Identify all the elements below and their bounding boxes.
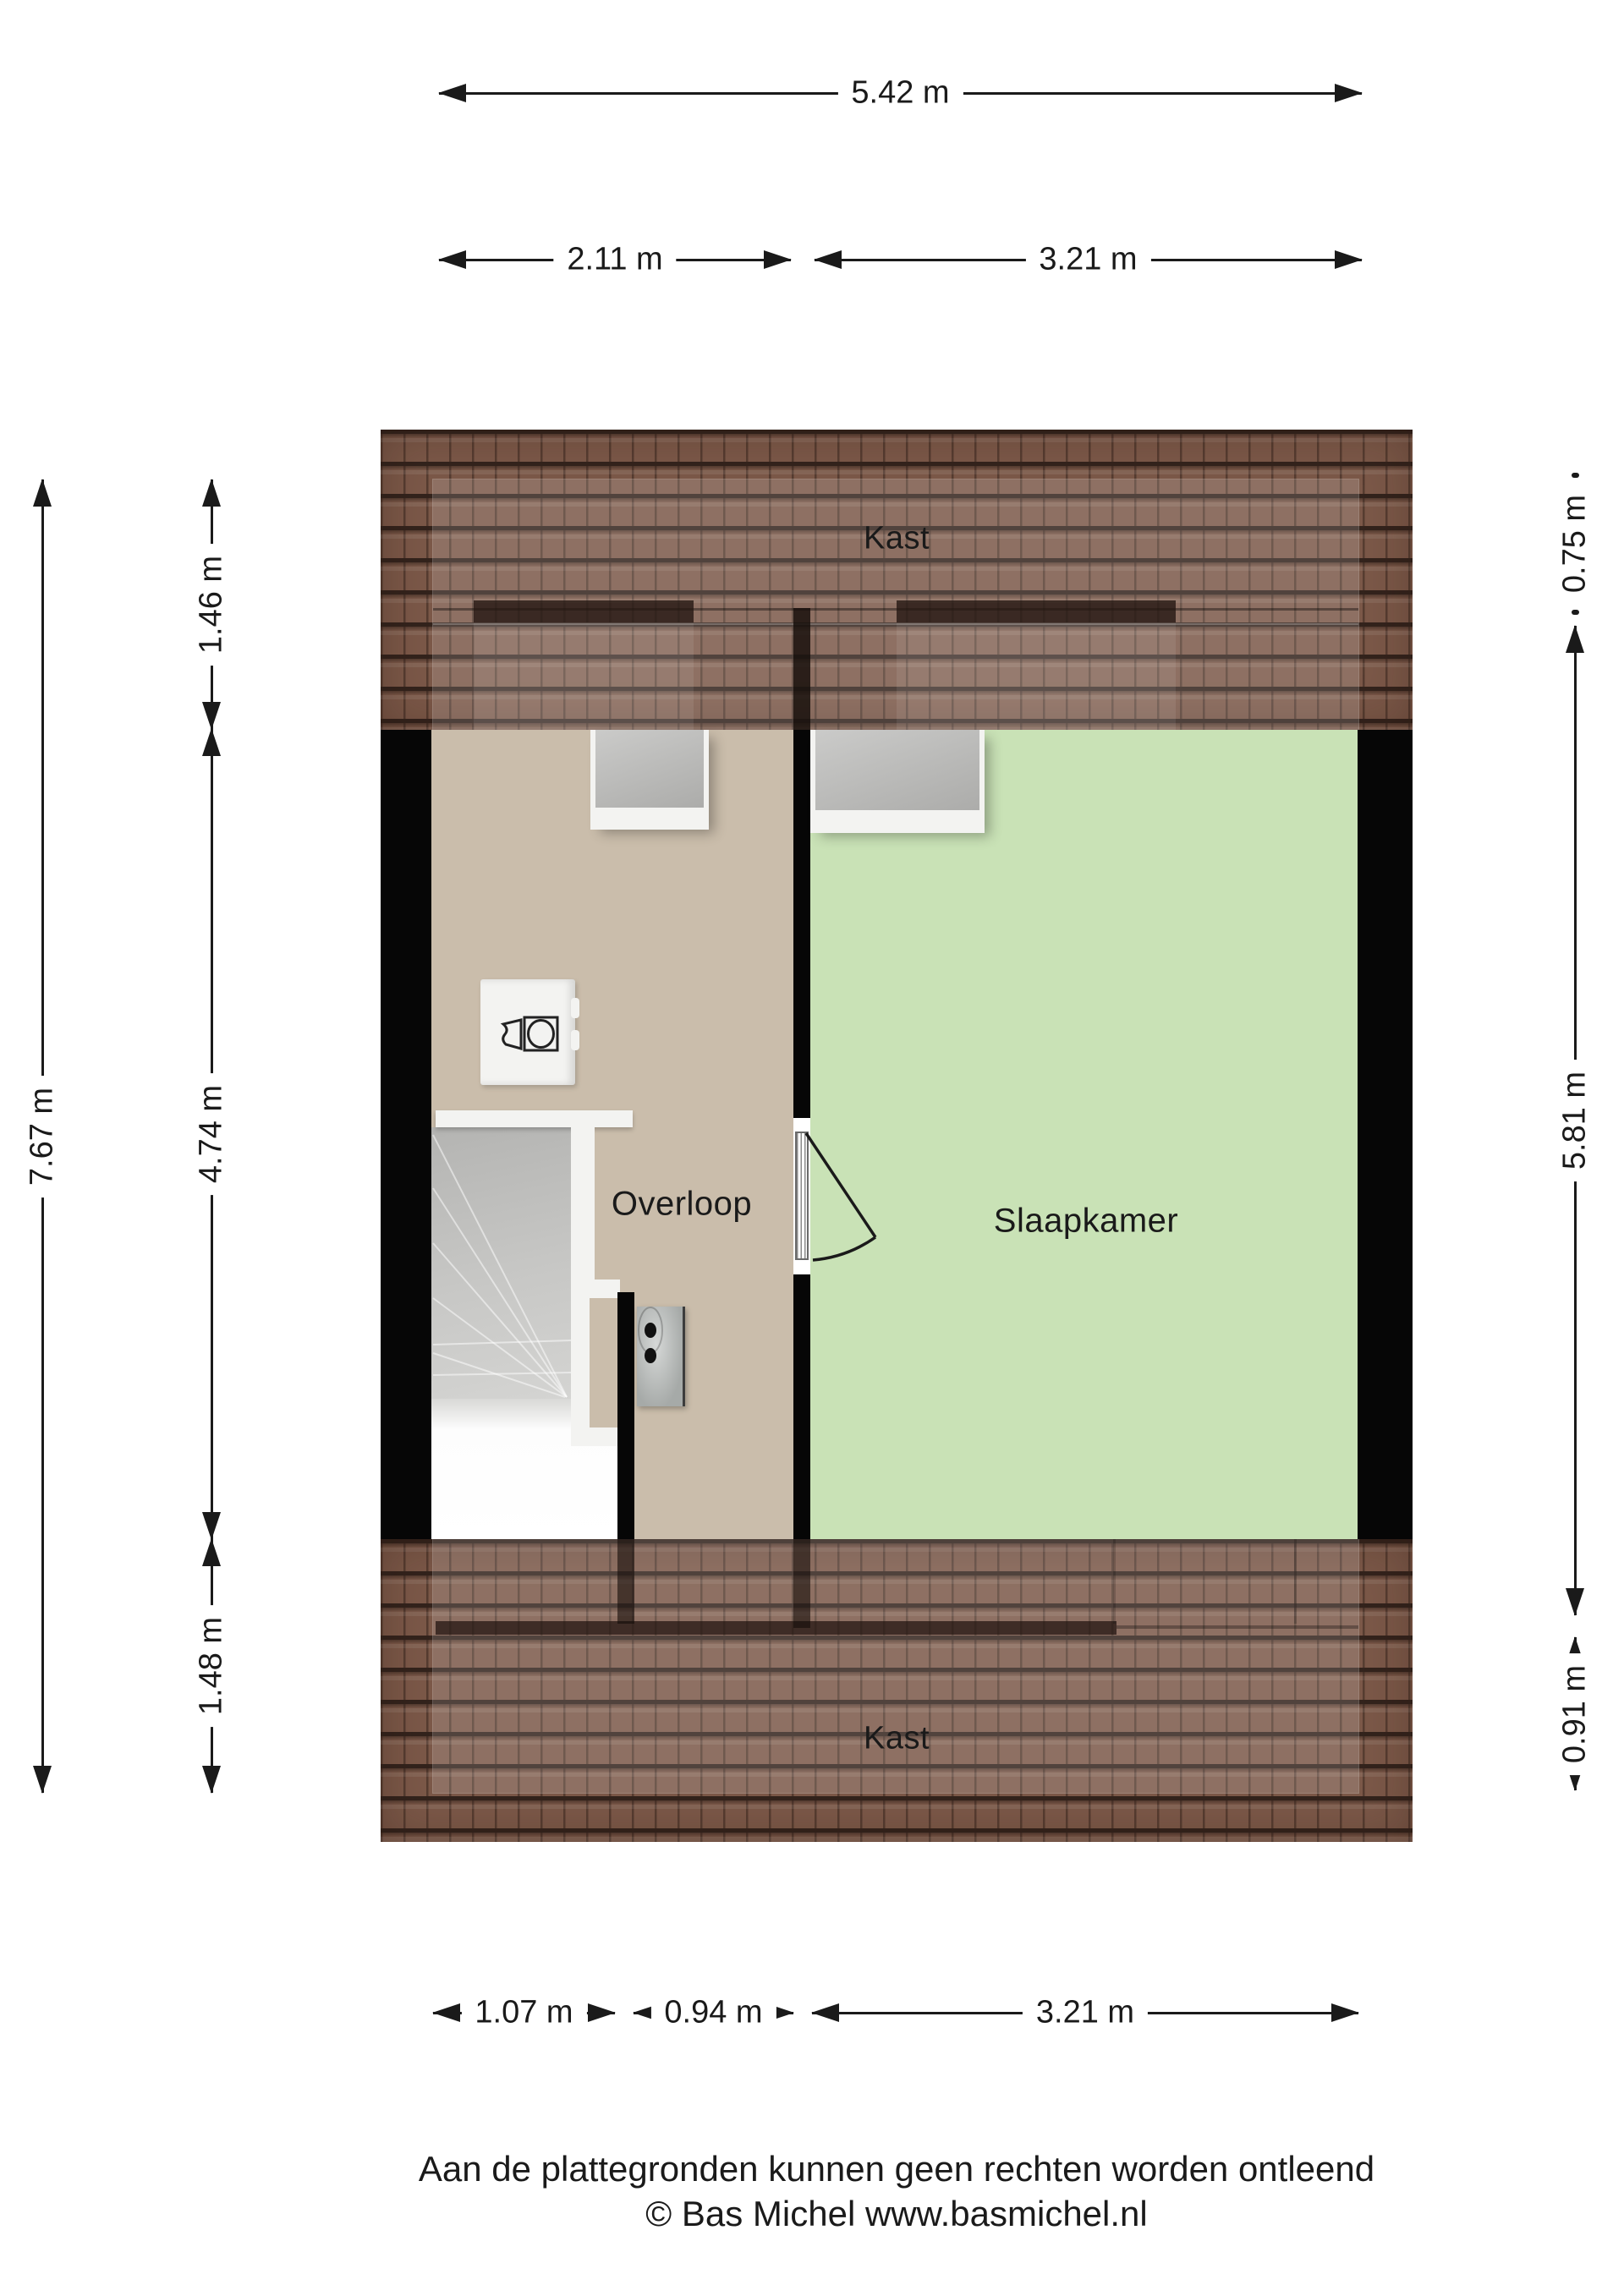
stair-railing-frame [571, 1280, 620, 1446]
dim-label: 2.11 m [553, 239, 676, 281]
divider-wall-under-roof-top [793, 608, 810, 730]
knee-wall-segment [897, 600, 1176, 622]
dim-label: 4.74 m [191, 1073, 233, 1195]
room-slaapkamer [810, 730, 1358, 1539]
dim-label: 3.21 m [1025, 239, 1150, 281]
window-overloop [590, 730, 709, 830]
dim-label: 1.48 m [191, 1605, 233, 1727]
label-slaapkamer: Slaapkamer [994, 1203, 1178, 1241]
dim-label: 0.94 m [650, 1992, 776, 2034]
electrical-panel-icon [637, 1307, 685, 1406]
dormer-reveal [897, 623, 1176, 730]
disclaimer-line1: Aan de plattegronden kunnen geen rechten… [220, 2146, 1573, 2191]
washing-machine-icon [480, 979, 575, 1085]
label-kast-bottom: Kast [864, 1721, 930, 1757]
label-overloop: Overloop [612, 1186, 752, 1224]
washer-hinge [571, 1030, 579, 1050]
dormer-reveal [474, 623, 694, 730]
dim-label: 7.67 m [22, 1075, 63, 1197]
label-kast-top: Kast [864, 521, 930, 557]
dim-label: 0.75 m [1555, 483, 1596, 605]
dim-label: 1.07 m [461, 1992, 586, 2034]
knee-wall-segment [474, 600, 694, 622]
disclaimer-line2: © Bas Michel www.basmichel.nl [220, 2191, 1573, 2236]
floorplan-page: Kast Overloop Slaapkamer Kast 5.42 m 2.1… [0, 0, 1624, 2296]
stair-railing-top [436, 1110, 633, 1127]
washer-hinge [571, 998, 579, 1018]
dim-label: 3.21 m [1023, 1992, 1148, 2034]
disclaimer: Aan de plattegronden kunnen geen rechten… [220, 2146, 1573, 2237]
dim-label: 5.81 m [1555, 1060, 1596, 1181]
winder-stairs [431, 1127, 571, 1399]
stair-railing-side [571, 1127, 595, 1280]
window-pane [815, 730, 979, 810]
stub-wall-under-roof [617, 1539, 634, 1624]
window-pane [595, 730, 704, 808]
knee-wall-line-bottom [1116, 1625, 1358, 1629]
divider-wall-under-roof-bottom [793, 1539, 810, 1628]
dim-label: 5.42 m [837, 73, 963, 114]
roof-reveal-line [1113, 1539, 1116, 1624]
dim-label: 0.91 m [1555, 1652, 1596, 1774]
door-leaf [795, 1132, 809, 1260]
dim-label: 1.46 m [191, 543, 233, 665]
stair-railing-frame-opening [590, 1298, 617, 1427]
outer-wall-right [1358, 730, 1413, 1539]
outer-wall-left [381, 730, 431, 1539]
window-slaapkamer [810, 730, 985, 833]
stub-wall [617, 1292, 634, 1539]
knee-wall-segment-bottom [436, 1621, 1116, 1635]
roof-reveal-line [1294, 1539, 1297, 1624]
